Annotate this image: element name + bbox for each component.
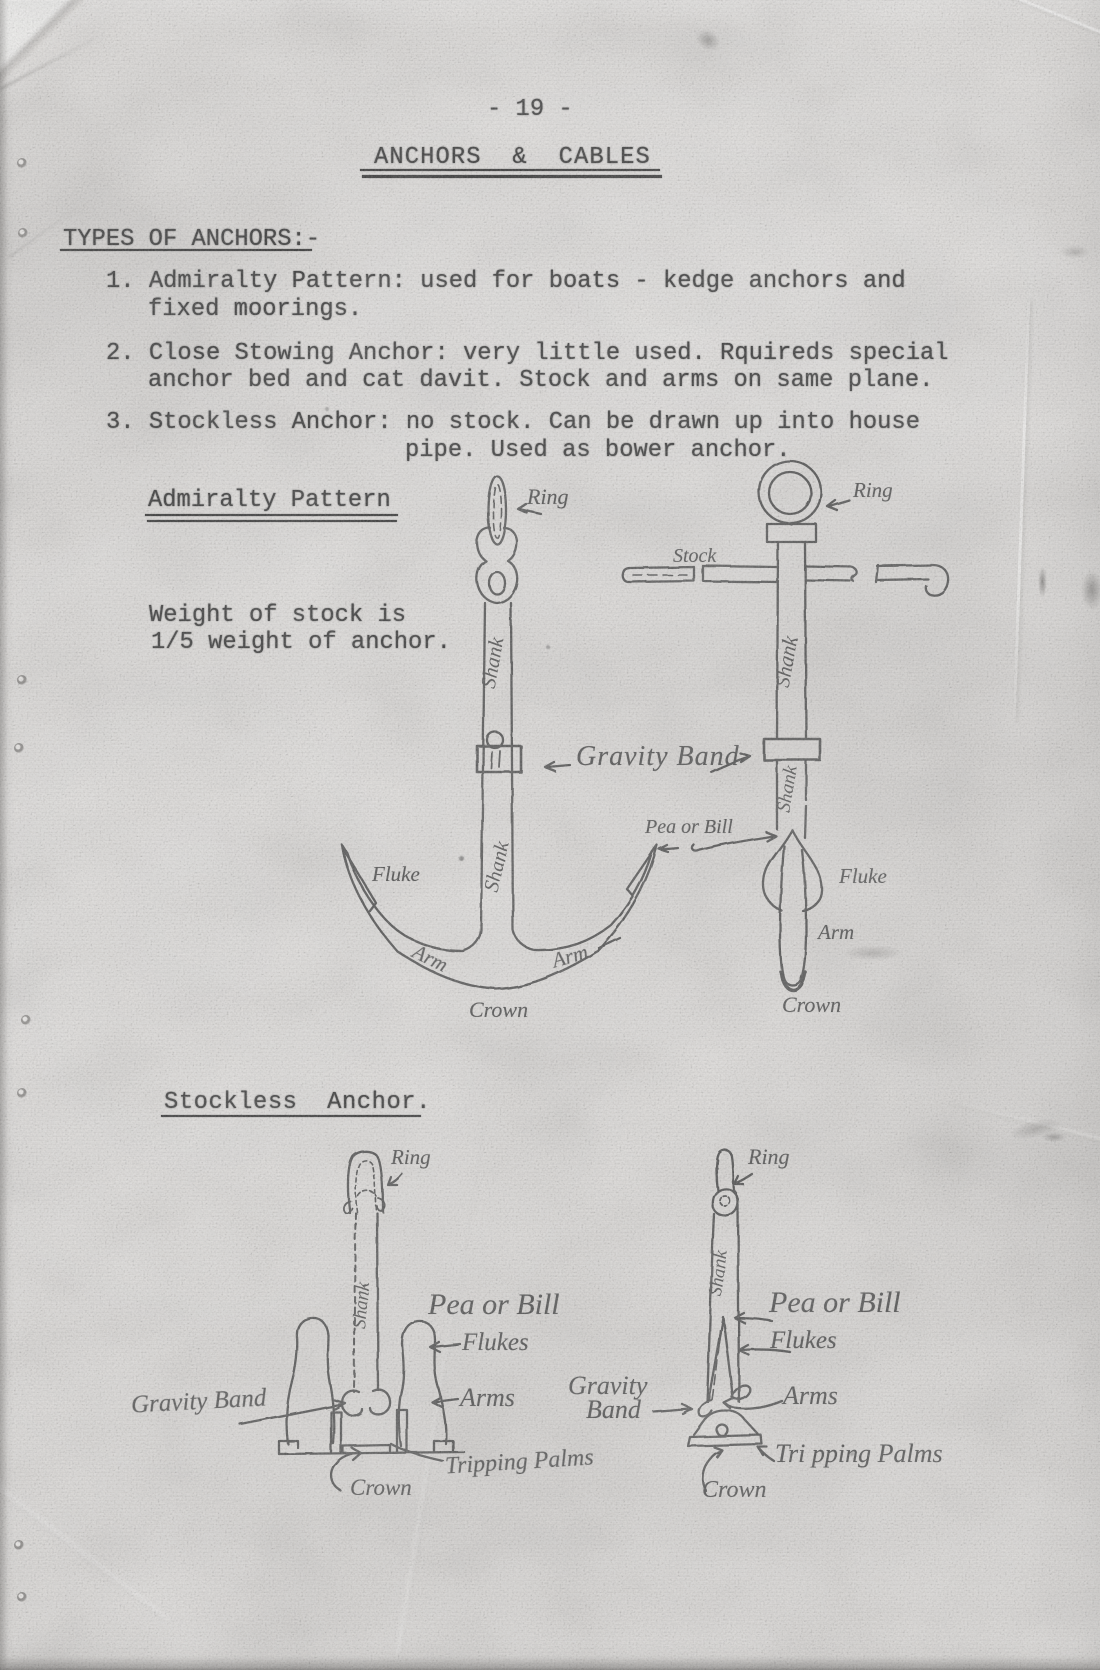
- svg-text:Shank: Shank: [705, 1248, 732, 1297]
- svg-text:Shank: Shank: [476, 635, 509, 690]
- svg-text:Shank: Shank: [479, 838, 514, 894]
- svg-text:Shank: Shank: [770, 634, 803, 689]
- svg-text:Shank: Shank: [349, 1281, 374, 1330]
